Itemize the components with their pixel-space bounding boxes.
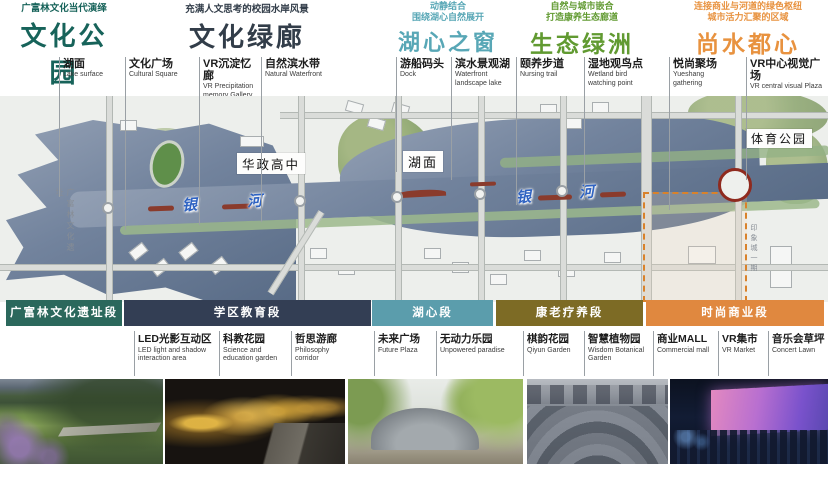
- leader-line: [261, 57, 262, 222]
- night-screen-event-photo: [670, 379, 828, 464]
- feature-label-en: Wetland bird watching point: [588, 71, 650, 89]
- feature-label-en: Philosophy corridor: [295, 347, 353, 365]
- feature-label-zh: 音乐会草坪: [772, 334, 826, 346]
- section-subtitle: 自然与城市嵌合: [528, 1, 636, 12]
- building-block: [565, 118, 582, 129]
- feature-label-cultural-square: 文化广场 Cultural Square: [129, 58, 193, 80]
- segment-bar-education: 学区教育段: [124, 300, 371, 326]
- bridge-node: [556, 185, 568, 197]
- section-header-eco-oasis: 自然与城市嵌合 打造康养生态廊道 生态绿洲: [528, 1, 636, 59]
- feature-label-zh: 无动力乐园: [440, 334, 522, 346]
- building-block: [310, 248, 327, 259]
- bridge-node: [391, 191, 403, 203]
- masterplan-board: 广富林文化当代演绎 文化公园 充满人文思考的校园水岸风景 文化绿廊 动静结合 围…: [0, 0, 828, 477]
- segment-bar-heritage: 广富林文化遗址段: [6, 300, 122, 326]
- leader-line: [718, 331, 719, 376]
- section-title: 湖心之窗: [396, 25, 500, 57]
- bridge-node: [294, 195, 306, 207]
- section-subtitle: 动静结合: [396, 1, 500, 12]
- feature-label-vr-market: VR集市 VR Market: [722, 334, 768, 355]
- feature-label-zh: LED光影互动区: [138, 334, 220, 346]
- feature-label-philosophy-corridor: 哲思游廊 Philosophy corridor: [295, 334, 353, 364]
- bridge-node: [102, 202, 114, 214]
- leader-line: [768, 331, 769, 376]
- map-label-heritage-site: 广富林文化遗址: [54, 188, 76, 264]
- feature-label-zh: 颐养步道: [520, 58, 580, 70]
- feature-label-bird-watching: 湿地观鸟点 Wetland bird watching point: [588, 58, 650, 89]
- feature-label-zh: 自然滨水带: [265, 58, 323, 70]
- waterfront-structure: [600, 192, 626, 198]
- section-subtitle-line2: 打造康养生态廊道: [528, 12, 636, 23]
- section-subtitle: 广富林文化当代演绎: [12, 3, 116, 15]
- section-subtitle: 充满人文思考的校园水岸风景: [183, 4, 311, 16]
- bridge-node: [474, 188, 486, 200]
- feature-label-zh: 未来广场: [378, 334, 434, 346]
- leader-line: [125, 57, 126, 230]
- feature-label-vr-central-plaza: VR中心视觉广场 VR central visual Plaza: [750, 58, 826, 92]
- slate-amphitheater-photo: [527, 379, 668, 464]
- leader-line: [219, 331, 220, 376]
- feature-label-natural-waterfront: 自然滨水带 Natural Waterfront: [265, 58, 323, 80]
- section-title: 尚水都心: [672, 25, 824, 59]
- feature-label-zh: 湖面: [63, 58, 121, 70]
- feature-label-concert-lawn: 音乐会草坪 Concert Lawn: [772, 334, 826, 355]
- section-subtitle: 连接商业与河道的绿色枢纽: [672, 1, 824, 12]
- leader-line: [436, 331, 437, 376]
- feature-label-botanical-garden: 智慧植物园 Wisdom Botanical Garden: [588, 334, 650, 364]
- feature-label-zh: 文化广场: [129, 58, 193, 70]
- building-block: [604, 252, 621, 263]
- road: [106, 96, 113, 302]
- feature-label-en: Cultural Square: [129, 71, 193, 80]
- feature-label-led-area: LED光影互动区 LED light and shadow interactio…: [138, 334, 220, 364]
- section-subtitle-line2: 围绕湖心自然展开: [396, 12, 500, 23]
- river-name-char: 银: [181, 194, 197, 216]
- leader-line: [134, 331, 135, 376]
- feature-label-en: Natural Waterfront: [265, 71, 323, 80]
- leader-line: [291, 331, 292, 376]
- feature-label-zh: 游船码头: [400, 58, 450, 70]
- leader-line: [523, 331, 524, 376]
- feature-label-nursing-trail: 颐养步道 Nursing trail: [520, 58, 580, 80]
- section-header-lake-window: 动静结合 围绕湖心自然展开 湖心之窗: [396, 1, 500, 57]
- river-name-char: 河: [578, 181, 594, 203]
- segment-bar-wellness: 康老疗养段: [496, 300, 643, 326]
- leader-line: [199, 57, 200, 225]
- leader-line: [746, 57, 747, 180]
- feature-label-en: Concert Lawn: [772, 347, 826, 356]
- leader-line: [584, 331, 585, 376]
- feature-label-lake-surface: 湖面 Lake surface: [63, 58, 121, 80]
- river-name-char: 银: [515, 186, 531, 208]
- feature-label-zh: 商业MALL: [657, 334, 717, 346]
- feature-label-unpowered-paradise: 无动力乐园 Unpowered paradise: [440, 334, 522, 355]
- leader-line: [653, 331, 654, 376]
- feature-label-zh: VR中心视觉广场: [750, 58, 826, 82]
- feature-label-en: VR Market: [722, 347, 768, 356]
- feature-label-en: Qiyun Garden: [527, 347, 585, 356]
- feature-label-en: Nursing trail: [520, 71, 580, 80]
- feature-label-vr-memory-gallery: VR沉淀忆廊 VR Precipitation memory Gallery: [203, 58, 261, 101]
- leader-line: [584, 57, 585, 200]
- light-projection-night-photo: [165, 379, 345, 464]
- feature-label-zh: 悦尚聚场: [673, 58, 725, 70]
- feature-label-zh: 哲思游廊: [295, 334, 353, 346]
- feature-label-en: VR central visual Plaza: [750, 83, 826, 92]
- feature-label-zh: VR沉淀忆廊: [203, 58, 261, 82]
- feature-label-future-plaza: 未来广场 Future Plaza: [378, 334, 434, 355]
- building-block: [490, 274, 507, 285]
- feature-label-qiyun-garden: 棋韵花园 Qiyun Garden: [527, 334, 585, 355]
- feature-label-zh: 科教花园: [223, 334, 289, 346]
- section-header-water-downtown: 连接商业与河道的绿色枢纽 城市活力汇聚的区域 尚水都心: [672, 1, 824, 59]
- segment-bar-lake: 湖心段: [372, 300, 493, 326]
- feature-label-waterfront-lake: 滨水景观湖 Waterfront landscape lake: [455, 58, 517, 89]
- building-block: [120, 120, 137, 131]
- feature-label-zh: 智慧植物园: [588, 334, 650, 346]
- leader-line: [451, 57, 452, 180]
- feature-label-science-garden: 科教花园 Science and education garden: [223, 334, 289, 364]
- feature-label-en: Waterfront landscape lake: [455, 71, 517, 89]
- feature-label-en: Science and education garden: [223, 347, 289, 365]
- map-label-school: 华政高中: [237, 153, 305, 174]
- leader-line: [516, 57, 517, 205]
- map-label-yinxiangcheng: 印象城一期: [748, 224, 758, 278]
- section-title: 生态绿洲: [528, 25, 636, 59]
- feature-label-en: Lake surface: [63, 71, 121, 80]
- feature-label-en: Yueshang gathering: [673, 71, 725, 89]
- leader-line: [374, 331, 375, 376]
- segment-bar-commercial: 时尚商业段: [646, 300, 824, 326]
- feature-label-en: Dock: [400, 71, 450, 80]
- feature-label-zh: VR集市: [722, 334, 768, 346]
- map-label-sports-park: 体育公园: [746, 129, 812, 148]
- section-header-culture-corridor: 充满人文思考的校园水岸风景 文化绿廊: [183, 4, 311, 54]
- commercial-district-boundary: [643, 192, 747, 302]
- building-block: [524, 250, 541, 261]
- feature-label-en: Commercial mall: [657, 347, 717, 356]
- building-block: [424, 248, 441, 259]
- leader-line: [669, 57, 670, 210]
- leader-line: [396, 57, 397, 172]
- feature-label-en: Future Plaza: [378, 347, 434, 356]
- park-lawn-photo: [0, 379, 163, 464]
- feature-label-zh: 棋韵花园: [527, 334, 585, 346]
- feature-label-yueshang-gathering: 悦尚聚场 Yueshang gathering: [673, 58, 725, 89]
- leader-line: [59, 57, 60, 197]
- feature-label-commercial-mall: 商业MALL Commercial mall: [657, 334, 717, 355]
- feature-label-en: LED light and shadow interaction area: [138, 347, 220, 365]
- map-label-lake: 湖面: [403, 151, 443, 172]
- feature-label-en: Wisdom Botanical Garden: [588, 347, 650, 365]
- section-subtitle-line2: 城市活力汇聚的区域: [672, 12, 824, 23]
- stone-mound-pavilion-photo: [348, 379, 523, 464]
- waterfront-structure: [148, 206, 174, 212]
- feature-label-dock: 游船码头 Dock: [400, 58, 450, 80]
- feature-label-zh: 湿地观鸟点: [588, 58, 650, 70]
- section-title: 文化绿廊: [183, 17, 311, 54]
- feature-label-en: Unpowered paradise: [440, 347, 522, 356]
- feature-label-zh: 滨水景观湖: [455, 58, 517, 70]
